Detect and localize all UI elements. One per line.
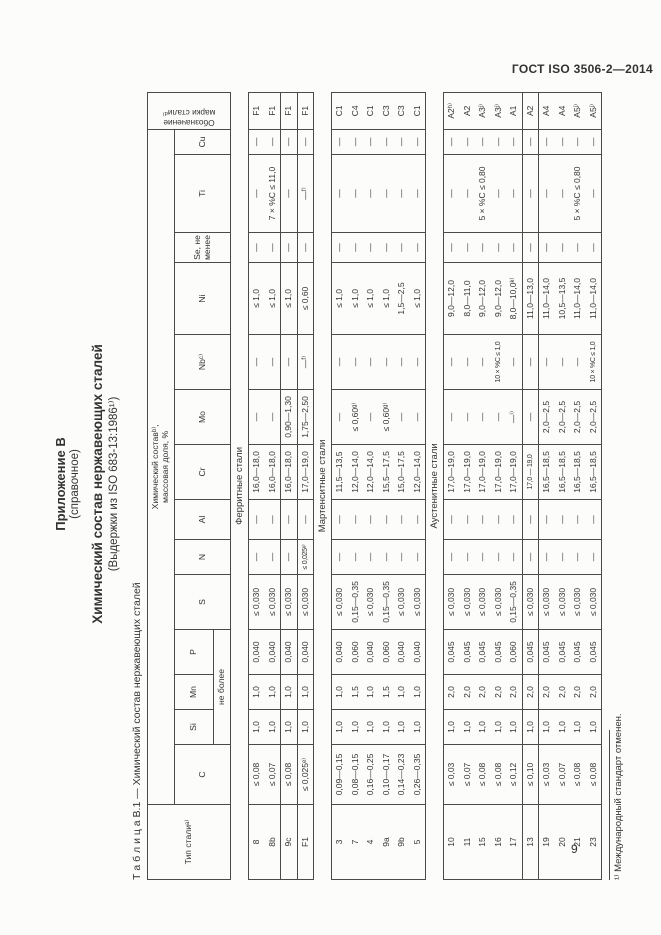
value-line: — [363,390,379,444]
value-line: — [348,130,364,154]
cell-Mo: —— [249,390,281,445]
value-line: 0,045 [586,630,602,674]
value-line: — [570,130,586,154]
value-line: 2,0 [444,675,460,709]
value-line: — [460,155,476,232]
value-line: F1 [249,93,265,129]
cell-Se: — [281,233,298,263]
cell-Ti: ——5 × %C ≤ 0,80— [539,155,602,233]
value-line: A3ʲ⁾ [475,93,491,129]
value-line: 1,0 [410,675,426,709]
cell-C: ≤ 0,08 [281,745,298,805]
value-line: 9,0—12,0 [475,263,491,334]
steel-group-row: 3749a9b50,09—0,150,08—0,150,16—0,250,10—… [332,92,426,879]
col-header-grade: Обозначение марки сталиᵈ⁾ [148,92,231,129]
value-line: A2 [523,93,539,129]
value-line: 1,0 [281,710,297,744]
value-line: 16,0—18,0 [281,445,297,499]
cell-S: ≤ 0,030 [281,575,298,630]
value-line: 0,08—0,15 [348,745,364,804]
value-line: ≤ 0,60ᵍ⁾ [348,390,364,444]
value-line: ≤ 0,03 [539,745,555,804]
cell-Nb: —— [249,335,281,390]
value-line: ≤ 0,08 [491,745,507,804]
col-header-ni: Ni [175,263,231,335]
value-line: 17,0—19,0 [475,445,491,499]
cell-S: ≤ 0,030≤ 0,030 [249,575,281,630]
value-line: 0,10—0,17 [379,745,395,804]
value-line: C3 [394,93,410,129]
value-line: A2ʰ⁾ [444,93,460,129]
value-line: — [539,130,555,154]
col-header-type: Тип сталиᵃ⁾ [148,805,231,880]
value-line: 0,060 [506,630,522,674]
cell-Nb: —ᶠ⁾ [297,335,314,390]
cell-Al: — [281,500,298,540]
value-line: ≤ 1,0 [410,263,426,334]
cell-P: 0,040 [297,630,314,675]
value-line: — [363,233,379,262]
value-line: ≤ 0,030 [410,575,426,629]
cell-Ti: —————— [332,155,426,233]
value-line: 1,0 [460,710,476,744]
page-number: 9 [571,842,578,856]
value-line: 1,0 [348,710,364,744]
cell-Cr: 11,5—13,512,0—14,012,0—14,015,5—17,515,0… [332,445,426,500]
value-line: 1,0 [444,710,460,744]
value-line: 0,045 [475,630,491,674]
value-line: — [506,335,522,389]
value-line: — [265,540,281,574]
value-line: A3ʲ⁾ [491,93,507,129]
value-line: ≤ 0,60ᵍ⁾ [379,390,395,444]
cell-Ni: ≤ 1,0≤ 1,0 [249,263,281,335]
value-line: — [444,155,460,232]
value-line: — [555,500,571,539]
value-line: 0,15—0,35 [379,575,395,629]
value-line: — [249,155,265,232]
value-line: 4 [363,805,379,879]
value-line: 7 [348,805,364,879]
value-line: 0,90—1,30 [281,390,297,444]
cell-Ni: ≤ 1,0 [281,263,298,335]
value-line: 17,0—19,0 [491,445,507,499]
cell-C: ≤ 0,03≤ 0,07≤ 0,08≤ 0,08≤ 0,12 [444,745,523,805]
value-line: 11,5—13,5 [332,445,348,499]
value-line: 0,060 [379,630,395,674]
value-line: 2,0—2,5 [570,390,586,444]
value-line: ≤ 1,0 [363,263,379,334]
value-line: — [281,130,297,154]
value-line: ≤ 0,030 [444,575,460,629]
value-line: — [332,540,348,574]
cell-Cu: —————— [332,129,426,154]
value-line: 0,040 [410,630,426,674]
cell-Ni: 11,0—14,010,5—13,511,0—14,011,0—14,0 [539,263,602,335]
value-line: ≤ 0,08 [586,745,602,804]
value-line: 11 [460,805,476,879]
value-line: ≤ 0,030 [539,575,555,629]
value-line: 2,0 [570,675,586,709]
col-header-nb: Nbᶜ⁾ [175,335,231,390]
value-line: — [460,233,476,262]
value-line: 1,0 [363,675,379,709]
value-line: 17,0 — 19,0 [523,445,539,499]
cell-Mn: 1,0 [297,675,314,710]
value-line: 1,0 [249,675,265,709]
value-line: — [332,390,348,444]
value-line: — [555,130,571,154]
value-line: — [506,500,522,539]
value-line: — [332,155,348,232]
cell-Mo: 0,90—1,30 [281,390,298,445]
cell-Se: —— [249,233,281,263]
value-line: 5 [410,805,426,879]
cell-Se: —————— [332,233,426,263]
value-line: — [460,540,476,574]
value-line: 1,0 [394,675,410,709]
value-line: ≤ 0,07 [555,745,571,804]
value-line: — [506,540,522,574]
col-header-composition: Химический составᵇ⁾, массовая доля, % [148,129,175,804]
value-line: 2,0 [523,675,539,709]
cell-Mn: 2,0 [522,675,539,710]
cell-Al: ————— [444,500,523,540]
cell-N: —————— [332,540,426,575]
value-line: — [506,130,522,154]
cell-N: ————— [444,540,523,575]
value-line: 0,045 [444,630,460,674]
value-line: ≤ 0,030 [523,575,539,629]
value-line: C1 [332,93,348,129]
value-line: — [555,155,571,232]
value-line: — [570,500,586,539]
value-line: 16,5—18,5 [555,445,571,499]
cell-type: 88b [249,805,281,880]
value-line: ≤ 0,025ᵉ⁾ [298,540,314,574]
value-line: 8,0—11,0 [460,263,476,334]
appendix-titles: Приложение В (справочное) Химический сос… [45,88,120,880]
value-line: 12,0—14,0 [348,445,364,499]
rotated-content: Приложение В (справочное) Химический сос… [45,88,590,880]
value-line: — [363,540,379,574]
cell-N: ———— [539,540,602,575]
cell-P: 0,0400,040 [249,630,281,675]
cell-Nb: — [522,335,539,390]
value-line: — [475,233,491,262]
cell-Nb: — [281,335,298,390]
composition-body: Ферритные стали88b≤ 0,08≤ 0,071,01,01,01… [231,92,602,879]
value-line: — [348,540,364,574]
value-line: — [394,500,410,539]
col-header-se: Se, не менее [175,233,231,263]
section-label: Мартенситные стали [314,92,332,879]
value-line: 7 × %C ≤ 11,0 [265,155,281,232]
value-line: 2,0—2,5 [586,390,602,444]
value-line: 10 [444,805,460,879]
value-line: — [491,500,507,539]
value-line: — [586,130,602,154]
cell-Si: 1,0 [297,710,314,745]
cell-Al: ———— [539,500,602,540]
value-line: 16,5—18,5 [570,445,586,499]
steel-group-row: F1≤ 0,025ᵉ⁾1,01,00,040≤ 0,030≤ 0,025ᵉ⁾—1… [297,92,314,879]
cell-C: ≤ 0,025ᵉ⁾ [297,745,314,805]
cell-Si: 1,01,0 [249,710,281,745]
value-line: — [379,155,395,232]
value-line: F1 [265,93,281,129]
value-line: — [460,130,476,154]
cell-Se: ————— [444,233,523,263]
value-line: 1,75—2,50 [298,390,314,444]
value-line: — [265,233,281,262]
value-line: — [410,540,426,574]
value-line: — [523,233,539,262]
value-line: 2,0 [491,675,507,709]
value-line: — [249,335,265,389]
value-line: 0,040 [394,630,410,674]
value-line: 10,5—13,5 [555,263,571,334]
cell-P: 0,045 [522,630,539,675]
value-line: 15,0—17,5 [394,445,410,499]
value-line: ≤ 1,0 [348,263,364,334]
cell-type: 9c [281,805,298,880]
cell-Si: 1,0 [281,710,298,745]
value-line: 15 [475,805,491,879]
value-line: 20 [555,805,571,879]
value-line: — [249,540,265,574]
cell-Cr: 16,0—18,016,0—18,0 [249,445,281,500]
value-line: 17,0—19,0 [460,445,476,499]
value-line: — [555,540,571,574]
value-line: 16 [491,805,507,879]
cell-Cr: 17,0—19,0 [297,445,314,500]
cell-S: ≤ 0,030≤ 0,030≤ 0,030≤ 0,030 [539,575,602,630]
cell-S: ≤ 0,030≤ 0,030≤ 0,030≤ 0,0300,15—0,35 [444,575,523,630]
value-line: 0,09—0,15 [332,745,348,804]
value-line: ≤ 0,08 [475,745,491,804]
value-line: ≤ 0,030 [249,575,265,629]
cell-Al: —— [249,500,281,540]
value-line: 1,0 [491,710,507,744]
value-line: — [491,540,507,574]
value-line: A5ʲ⁾ [570,93,586,129]
value-line: ≤ 0,030 [586,575,602,629]
value-line: —ᶠ⁾ [298,155,314,232]
cell-Mo: 2,0—2,52,0—2,52,0—2,52,0—2,5 [539,390,602,445]
value-line: — [444,390,460,444]
value-line: 11,0—14,0 [586,263,602,334]
value-line: — [348,335,364,389]
value-line: 0,045 [523,630,539,674]
value-line: — [281,540,297,574]
value-line: 0,16—0,25 [363,745,379,804]
cell-Cu: ————— [444,129,523,154]
cell-Ti: —7 × %C ≤ 11,0 [249,155,281,233]
cell-C: 0,09—0,150,08—0,150,16—0,250,10—0,170,14… [332,745,426,805]
value-line: 16,0—18,0 [265,445,281,499]
value-line: ≤ 0,07 [460,745,476,804]
value-line: — [539,233,555,262]
value-line: — [570,335,586,389]
value-line: ≤ 0,08 [281,745,297,804]
value-line: 1,0 [539,710,555,744]
cell-N: — [281,540,298,575]
value-line: 9,0—12,0 [491,263,507,334]
value-line: — [265,335,281,389]
value-line: 1,5 [348,675,364,709]
value-line: 0,045 [555,630,571,674]
value-line: 8b [265,805,281,879]
cell-Al: —————— [332,500,426,540]
cell-type: 19202123 [539,805,602,880]
value-line: ≤ 0,10 [523,745,539,804]
value-line: — [249,130,265,154]
appendix-title: Химический состав нержавеющих сталей [90,88,105,880]
cell-Nb: —————— [332,335,426,390]
steel-group-row: 88b≤ 0,08≤ 0,071,01,01,01,00,0400,040≤ 0… [249,92,281,879]
value-line: C1 [363,93,379,129]
value-line: — [281,500,297,539]
cell-type: F1 [297,805,314,880]
col-header-n: N [175,540,231,575]
value-line: 12,0—14,0 [410,445,426,499]
value-line: — [523,335,539,389]
col-header-mo: Mo [175,390,231,445]
value-line: — [475,540,491,574]
value-line: 1,0 [570,710,586,744]
value-line: — [444,540,460,574]
cell-Ti: —ᶠ⁾ [297,155,314,233]
value-line: 2,0 [460,675,476,709]
cell-N: — [522,540,539,575]
cell-Si: 1,01,01,01,0 [539,710,602,745]
value-line: ≤ 0,030 [332,575,348,629]
value-line: — [491,233,507,262]
cell-Cu: — [281,129,298,154]
page-root: { "page": { "standard_ref": "ГОСТ ISO 35… [0,0,661,935]
value-line: 2,0 [586,675,602,709]
value-line: — [444,233,460,262]
value-line: — [332,130,348,154]
cell-Si: 1,01,01,01,01,01,0 [332,710,426,745]
value-line: 1,0 [298,675,314,709]
value-line: 10 × %C ≤ 1,0 [586,335,602,389]
composition-table: Тип сталиᵃ⁾ Химический составᵇ⁾, массова… [147,92,602,880]
value-line: 17 [506,805,522,879]
cell-Mo: —≤ 0,60ᵍ⁾—≤ 0,60ᵍ⁾—— [332,390,426,445]
value-line: 1,0 [249,710,265,744]
value-line: ≤ 0,030 [265,575,281,629]
value-line: 2,0 [555,675,571,709]
value-line: — [363,335,379,389]
value-line: ≤ 0,03 [444,745,460,804]
cell-grade: F1F1 [249,92,281,129]
cell-grade: A4A4A5ʲ⁾A5ʲ⁾ [539,92,602,129]
col-header-p: P [175,630,214,675]
value-line: 0,040 [281,630,297,674]
value-line: 1,0 [394,710,410,744]
col-header-cr: Cr [175,445,231,500]
value-line: ≤ 0,030 [281,575,297,629]
cell-grade: C1C4C1C3C3C1 [332,92,426,129]
value-line: — [460,500,476,539]
value-line: — [332,335,348,389]
value-line: 1,5—2,5 [394,263,410,334]
cell-Se: — [522,233,539,263]
value-line: 0,040 [249,630,265,674]
steel-group-row: 1011151617≤ 0,03≤ 0,07≤ 0,08≤ 0,08≤ 0,12… [444,92,523,879]
cell-Mn: 2,02,02,02,0 [539,675,602,710]
value-line: — [444,335,460,389]
value-line: 1,0 [332,710,348,744]
value-line: ≤ 0,12 [506,745,522,804]
value-line: 0,26—0,35 [410,745,426,804]
cell-Cu: — [297,129,314,154]
value-line: — [410,130,426,154]
value-line: F1 [281,93,297,129]
cell-type: 13 [522,805,539,880]
value-line: 0,040 [265,630,281,674]
value-line: 0,14—0,23 [394,745,410,804]
value-line: — [379,335,395,389]
value-line: ≤ 0,030 [363,575,379,629]
cell-grade: A2ʰ⁾A2A3ʲ⁾A3ʲ⁾A1 [444,92,523,129]
value-line: 0,040 [363,630,379,674]
section-row: Мартенситные стали [314,92,332,879]
value-line: 1,0 [410,710,426,744]
cell-Cr: 17,0 — 19,0 [522,445,539,500]
value-line: — [281,335,297,389]
value-line: ≤ 1,0 [379,263,395,334]
value-line: — [586,233,602,262]
col-header-al: Al [175,500,231,540]
value-line: — [491,130,507,154]
value-line: — [539,155,555,232]
value-line: — [281,233,297,262]
value-line: A5ʲ⁾ [586,93,602,129]
value-line: A1 [506,93,522,129]
cell-Nb: ———10 × %C ≤ 1,0— [444,335,523,390]
value-line: — [379,130,395,154]
value-line: 2,0 [475,675,491,709]
value-line: 0,045 [460,630,476,674]
value-line: — [379,540,395,574]
value-line: — [491,390,507,444]
cell-Cr: 17,0—19,017,0—19,017,0—19,017,0—19,017,0… [444,445,523,500]
value-line: 0,045 [491,630,507,674]
not-more-header: не более [214,630,231,745]
section-label: Ферритные стали [231,92,249,879]
cell-Al: — [297,500,314,540]
value-line: ≤ 0,025ᵉ⁾ [298,745,314,804]
value-line: 17,0—19,0 [298,445,314,499]
value-line: A4 [539,93,555,129]
value-line: 0,045 [570,630,586,674]
value-line: 0,15—0,35 [506,575,522,629]
value-line: — [265,390,281,444]
cell-C: ≤ 0,10 [522,745,539,805]
cell-Al: — [522,500,539,540]
value-line: — [410,390,426,444]
value-line: ≤ 0,030 [394,575,410,629]
value-line: —ᶠ⁾ [298,335,314,389]
cell-C: ≤ 0,03≤ 0,07≤ 0,08≤ 0,08 [539,745,602,805]
col-header-si: Si [175,710,214,745]
value-line: — [586,155,602,232]
col-header-ti: Ti [175,155,231,233]
cell-Ni: 9,0—12,08,0—11,09,0—12,09,0—12,08,0—10,0… [444,263,523,335]
